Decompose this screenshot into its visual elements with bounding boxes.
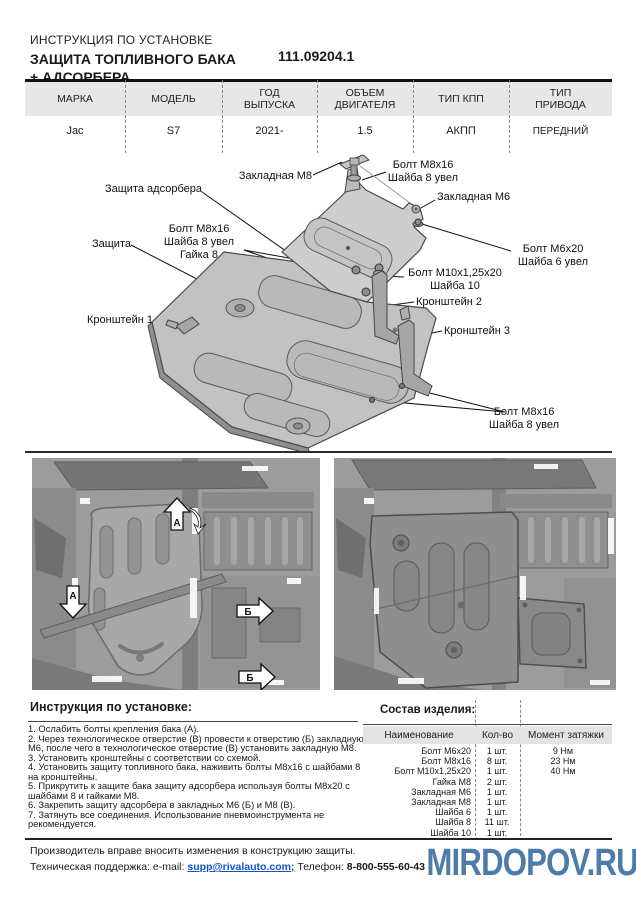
- support-phone: 8-800-555-60-43: [347, 861, 425, 873]
- crossmember: [500, 494, 612, 508]
- exploded-view-diagram: Закладная М8 Болт М8х16 Шайба 8 увел Защ…: [0, 150, 636, 452]
- callout-bracket-3: Кронштейн 3: [444, 325, 510, 338]
- plate-slot: [429, 543, 454, 633]
- crossmember: [202, 492, 314, 508]
- callout-bracket-1: Кронштейн 1: [87, 314, 153, 327]
- bolt-m8-assembly: [340, 155, 369, 181]
- doc-type-label: ИНСТРУКЦИЯ ПО УСТАНОВКЕ: [30, 33, 212, 47]
- callout-adsorber-guard: Защита адсорбера: [105, 183, 202, 196]
- suspension-area: [32, 488, 76, 668]
- rocker-panel: [352, 460, 596, 490]
- parts-row: Гайка М82 шт.: [363, 777, 612, 787]
- callout-bolt-m10: Болт М10х1,25х20 Шайба 10: [406, 267, 504, 293]
- parts-col-torque: Момент затяжки: [520, 726, 612, 744]
- parts-row: Закладная М61 шт.: [363, 787, 612, 797]
- installed-adsorber-plate: [518, 598, 586, 668]
- step-5: 5. Прикрутить к защите бака защиту адсор…: [28, 781, 364, 800]
- part-torque: 9 Нм: [519, 746, 607, 756]
- cell-drive: ПЕРЕДНИЙ: [509, 116, 612, 146]
- plate-bolt: [451, 647, 457, 653]
- phone-label: Телефон:: [294, 861, 346, 873]
- part-qty: 1 шт.: [475, 807, 519, 817]
- part-torque: 23 Нм: [519, 756, 607, 766]
- tank-drain: [136, 654, 144, 662]
- part-qty: 1 шт.: [475, 787, 519, 797]
- cell-year: 2021-: [222, 116, 317, 146]
- cell-model: S7: [125, 116, 222, 146]
- part-name: Болт М10х1,25х20: [363, 766, 475, 776]
- washer-hole: [235, 305, 245, 312]
- parts-row: Закладная М81 шт.: [363, 797, 612, 807]
- photos-divider-line: [25, 451, 612, 453]
- part-qty: 1 шт.: [475, 766, 519, 776]
- svg-text:А: А: [173, 518, 180, 529]
- instruction-sheet: ИНСТРУКЦИЯ ПО УСТАНОВКЕ ЗАЩИТА ТОПЛИВНОГ…: [0, 0, 636, 900]
- bolt-head: [350, 158, 359, 165]
- parts-row: Шайба 101 шт.: [363, 828, 612, 838]
- part-qty: 2 шт.: [475, 777, 519, 787]
- support-label: Техническая поддержка: e-mail:: [30, 861, 187, 873]
- col-header-engine: ОБЪЕМ ДВИГАТЕЛЯ: [317, 82, 413, 116]
- manufacturer-note: Производитель вправе вносить изменения в…: [30, 845, 356, 857]
- washer: [348, 175, 361, 181]
- col-header-drive: ТИП ПРИВОДА: [509, 82, 612, 116]
- part-name: Шайба 8: [363, 817, 475, 827]
- callout-bolt-m8-bottom: Болт М8х16 Шайба 8 увел: [480, 406, 568, 432]
- svg-text:Б: Б: [246, 673, 253, 684]
- suspension-area: [334, 488, 374, 668]
- cell-gearbox: АКПП: [413, 116, 509, 146]
- plate-bolt: [523, 603, 528, 608]
- part-torque: 40 Нм: [519, 766, 607, 776]
- parts-col-qty: Кол-во: [475, 726, 520, 744]
- support-line: Техническая поддержка: e-mail: supp@riva…: [30, 861, 425, 873]
- parts-top-rule: [363, 724, 612, 725]
- plate-bolt: [458, 602, 465, 609]
- site-watermark: MIRDOPOV.RU: [427, 842, 636, 885]
- part-name: Шайба 6: [363, 807, 475, 817]
- callout-bolt-m8-top: Болт М8х16 Шайба 8 увел: [383, 159, 463, 185]
- part-qty: 1 шт.: [475, 828, 519, 838]
- plate-bolt: [577, 608, 582, 613]
- main-protection-plate: [148, 252, 436, 452]
- parts-rows: Болт М6х201 шт.9 Нм Болт М8х168 шт.23 Нм…: [363, 746, 612, 838]
- parts-row: Болт М6х201 шт.9 Нм: [363, 746, 612, 756]
- parts-row: Шайба 811 шт.: [363, 817, 612, 827]
- plate-hole: [346, 246, 350, 250]
- plate-slot: [464, 543, 489, 630]
- svg-text:А: А: [69, 591, 76, 602]
- underbody-photo-after: [334, 458, 616, 690]
- bottom-rule: [25, 838, 612, 840]
- part-number: 111.09204.1: [278, 48, 354, 64]
- photo-after-install: [334, 458, 616, 690]
- step-7: 7. Затянуть все соединения. Использовани…: [28, 810, 364, 829]
- part-name: Болт М8х16: [363, 756, 475, 766]
- underbody-detail: [212, 588, 246, 658]
- part-name: Шайба 10: [363, 828, 475, 838]
- photo-before-install: А А Б Б: [32, 458, 320, 690]
- callout-bolt-m8-nut: Болт М8х16 Шайба 8 увел Гайка 8: [156, 223, 242, 262]
- underbody-photo-before: А А Б Б: [32, 458, 320, 690]
- installed-main-plate: [370, 512, 518, 688]
- part-qty: 1 шт.: [475, 746, 519, 756]
- parts-row: Шайба 61 шт.: [363, 807, 612, 817]
- callout-bolt-m6: Болт М6х20 Шайба 6 увел: [513, 243, 593, 269]
- step-2: 2. Через технологическое отверстие (В) п…: [28, 734, 364, 753]
- parts-row: Болт М8х168 шт.23 Нм: [363, 756, 612, 766]
- col-header-year: ГОД ВЫПУСКА: [222, 82, 317, 116]
- plate-bolt: [578, 659, 583, 664]
- instructions-top-rule: [28, 721, 358, 722]
- floor-rib-panel: [204, 512, 312, 570]
- callout-embedded-m8: Закладная М8: [222, 170, 312, 183]
- part-name: Закладная М6: [363, 787, 475, 797]
- parts-col-name: Наименование: [363, 726, 475, 744]
- callout-bracket-2: Кронштейн 2: [416, 296, 482, 309]
- instructions-heading: Инструкция по установке:: [30, 700, 192, 714]
- bolt-shaft: [351, 164, 357, 176]
- support-email-link[interactable]: supp@rivalauto.com;: [187, 861, 294, 873]
- part-qty: 8 шт.: [475, 756, 519, 766]
- callout-guard: Защита: [92, 238, 131, 251]
- parts-row: Болт М10х1,25х201 шт.40 Нм: [363, 766, 612, 776]
- part-name: Болт М6х20: [363, 746, 475, 756]
- plate-slot: [532, 613, 570, 655]
- plate-bolt: [398, 540, 404, 546]
- col-header-gearbox: ТИП КПП: [413, 82, 509, 116]
- part-name: Гайка М8: [363, 777, 475, 787]
- cell-engine: 1.5: [317, 116, 413, 146]
- part-qty: 1 шт.: [475, 797, 519, 807]
- col-header-model: МОДЕЛЬ: [125, 82, 222, 116]
- cell-brand: Jac: [25, 116, 125, 146]
- svg-text:Б: Б: [244, 607, 251, 618]
- col-header-brand: МАРКА: [25, 82, 125, 116]
- rocker-panel: [54, 462, 268, 490]
- embedded-nut-m6: [412, 205, 420, 213]
- callout-embedded-m6: Закладная М6: [437, 191, 510, 204]
- washer-hole: [294, 423, 303, 429]
- instructions-steps: 1. Ослабить болты крепления бака (А). 2.…: [28, 724, 364, 837]
- part-name: Закладная М8: [363, 797, 475, 807]
- parts-heading: Состав изделия:: [380, 704, 475, 716]
- step-4: 4. Установить защиту топливного бака, на…: [28, 762, 364, 781]
- part-qty: 11 шт.: [475, 817, 519, 827]
